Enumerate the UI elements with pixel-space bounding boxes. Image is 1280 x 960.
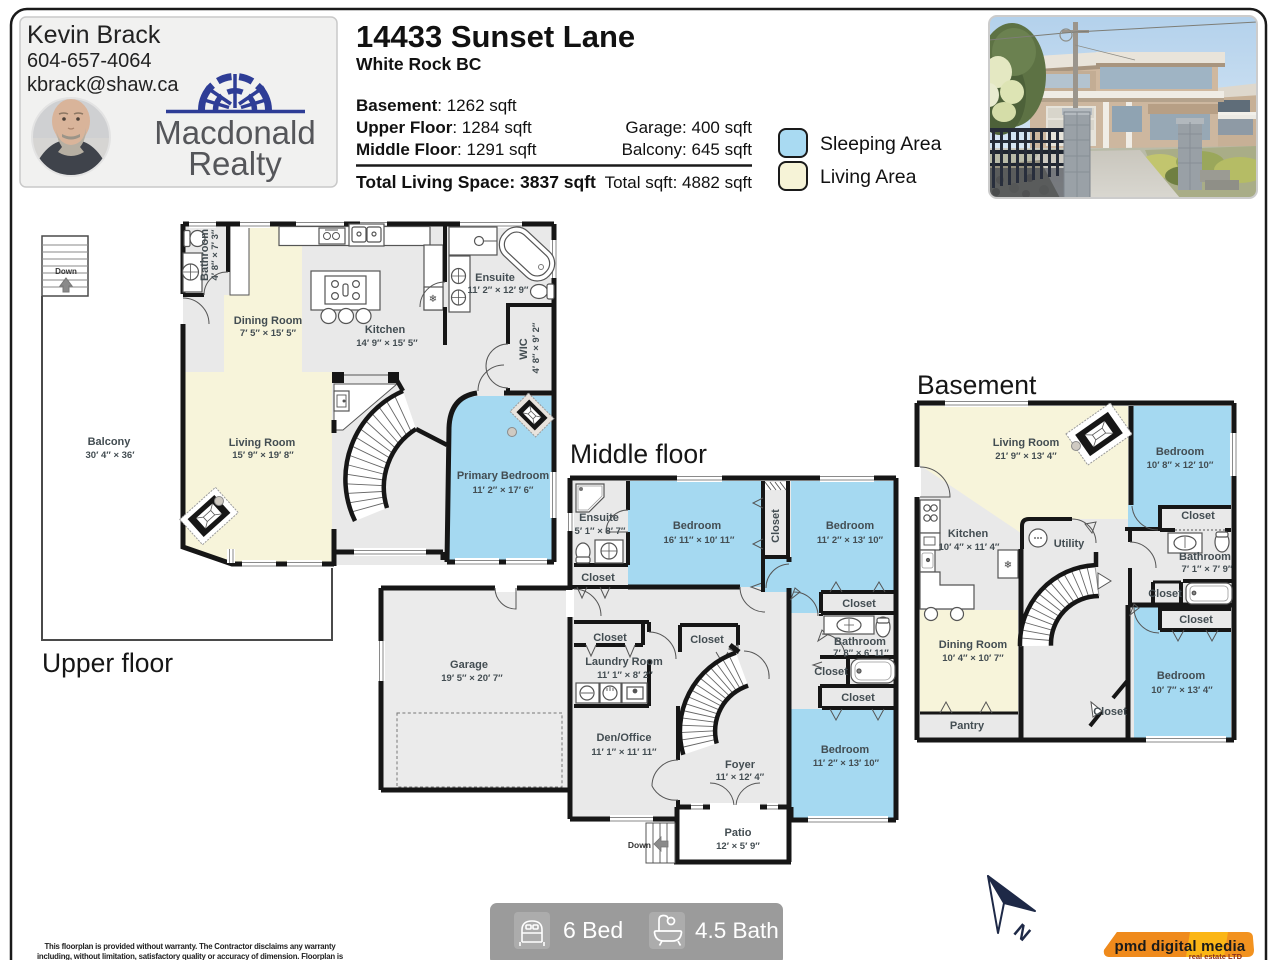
svg-text:5′ 1″ × 8′ 7″: 5′ 1″ × 8′ 7″ [575, 526, 626, 537]
svg-text:11′ 2″ × 17′ 6″: 11′ 2″ × 17′ 6″ [473, 485, 534, 496]
svg-text:Living Room: Living Room [993, 437, 1060, 449]
svg-text:Closet: Closet [1093, 706, 1127, 718]
svg-text:Foyer: Foyer [725, 759, 756, 771]
svg-text:Down: Down [628, 840, 651, 850]
svg-text:Realty: Realty [188, 145, 282, 182]
svg-text:WIC: WIC [518, 338, 530, 359]
svg-text:Den/Office: Den/Office [596, 732, 651, 744]
svg-text:Bedroom: Bedroom [821, 744, 870, 756]
svg-text:Closet: Closet [814, 666, 848, 678]
svg-text:Primary Bedroom: Primary Bedroom [457, 470, 550, 482]
svg-text:Upper floor: Upper floor [42, 648, 173, 678]
svg-text:Basement: Basement [917, 370, 1037, 400]
svg-text:7′ 5″ × 15′ 5″: 7′ 5″ × 15′ 5″ [240, 328, 297, 339]
svg-text:Living Room: Living Room [229, 437, 296, 449]
svg-text:Bathroom: Bathroom [834, 636, 886, 648]
svg-text:11′ 2″ × 12′ 9″: 11′ 2″ × 12′ 9″ [468, 285, 529, 296]
svg-text:10′ 4″ × 11′ 4″: 10′ 4″ × 11′ 4″ [939, 542, 1000, 553]
svg-text:Patio: Patio [725, 827, 752, 839]
svg-text:Living Area: Living Area [820, 166, 917, 188]
svg-text:Garage: 400 sqft: Garage: 400 sqft [625, 118, 752, 137]
svg-text:Closet: Closet [841, 692, 875, 704]
svg-text:Closet: Closet [1179, 614, 1213, 626]
svg-text:14′ 9″ × 15′ 5″: 14′ 9″ × 15′ 5″ [356, 338, 418, 349]
svg-text:kbrack@shaw.ca: kbrack@shaw.ca [27, 74, 179, 96]
svg-text:604-657-4064: 604-657-4064 [27, 50, 152, 72]
svg-text:Total Living Space: 3837 sqft: Total Living Space: 3837 sqft [356, 172, 596, 192]
svg-text:4′ 8″ × 9′ 2″: 4′ 8″ × 9′ 2″ [531, 322, 542, 373]
svg-text:Bedroom: Bedroom [1156, 446, 1205, 458]
svg-text:Closet: Closet [1148, 588, 1182, 600]
svg-text:Kitchen: Kitchen [365, 324, 406, 336]
svg-text:10′ 4″ × 10′ 7″: 10′ 4″ × 10′ 7″ [942, 653, 1004, 664]
svg-text:Closet: Closet [1181, 510, 1215, 522]
svg-text:19′ 5″ × 20′ 7″: 19′ 5″ × 20′ 7″ [441, 673, 503, 684]
svg-text:Upper Floor: 1284 sqft: Upper Floor: 1284 sqft [356, 118, 532, 137]
svg-text:Balcony: 645 sqft: Balcony: 645 sqft [622, 140, 753, 159]
svg-text:Closet: Closet [842, 598, 876, 610]
svg-text:11′ 1″ × 8′ 2″: 11′ 1″ × 8′ 2″ [597, 670, 653, 681]
svg-text:Pantry: Pantry [950, 720, 985, 732]
svg-text:real estate LTD: real estate LTD [1189, 952, 1243, 960]
svg-text:Ensuite: Ensuite [475, 272, 515, 284]
svg-text:15′ 9″ × 19′ 8″: 15′ 9″ × 19′ 8″ [232, 450, 294, 461]
svg-text:This floorplan is provided wit: This floorplan is provided without warra… [44, 942, 336, 951]
svg-text:Kitchen: Kitchen [948, 528, 989, 540]
svg-text:Utility: Utility [1054, 538, 1085, 550]
svg-text:21′ 9″ × 13′ 4″: 21′ 9″ × 13′ 4″ [995, 451, 1057, 462]
svg-text:14433 Sunset Lane: 14433 Sunset Lane [356, 19, 635, 54]
svg-text:Ensuite: Ensuite [579, 512, 619, 524]
svg-text:11′ 2″ × 13′ 10″: 11′ 2″ × 13′ 10″ [813, 758, 880, 769]
svg-text:Bedroom: Bedroom [673, 520, 722, 532]
svg-text:Laundry Room: Laundry Room [585, 656, 663, 668]
svg-text:11′ 2″ × 13′ 10″: 11′ 2″ × 13′ 10″ [817, 535, 884, 546]
svg-text:16′ 11″ × 10′ 11″: 16′ 11″ × 10′ 11″ [664, 535, 735, 546]
svg-text:❄: ❄ [429, 294, 437, 305]
svg-text:4.5 Bath: 4.5 Bath [695, 918, 779, 943]
svg-text:Closet: Closet [593, 632, 627, 644]
svg-text:Bedroom: Bedroom [826, 520, 875, 532]
svg-text:Dining Room: Dining Room [939, 639, 1008, 651]
svg-text:30′ 4″ × 36′: 30′ 4″ × 36′ [86, 450, 136, 461]
svg-text:Bedroom: Bedroom [1157, 670, 1206, 682]
svg-text:6 Bed: 6 Bed [563, 917, 623, 943]
svg-text:4′ 8″ × 7′ 3″: 4′ 8″ × 7′ 3″ [210, 229, 221, 280]
svg-text:Sleeping Area: Sleeping Area [820, 133, 942, 155]
svg-text:Middle Floor: 1291 sqft: Middle Floor: 1291 sqft [356, 140, 537, 159]
svg-text:7′ 1″ × 7′ 9″: 7′ 1″ × 7′ 9″ [1182, 564, 1233, 575]
svg-text:Basement: 1262 sqft: Basement: 1262 sqft [356, 96, 517, 115]
svg-text:White Rock BC: White Rock BC [356, 54, 482, 74]
svg-text:Dining Room: Dining Room [234, 315, 303, 327]
svg-text:11′ 1″ × 11′ 11″: 11′ 1″ × 11′ 11″ [591, 747, 657, 758]
svg-text:Closet: Closet [690, 634, 724, 646]
svg-text:Balcony: Balcony [88, 436, 132, 448]
svg-text:Down: Down [55, 267, 77, 276]
svg-text:❄: ❄ [1004, 560, 1012, 571]
svg-text:10′ 8″ × 12′ 10″: 10′ 8″ × 12′ 10″ [1147, 460, 1214, 471]
svg-text:Garage: Garage [450, 659, 488, 671]
svg-text:11′ × 12′ 4″: 11′ × 12′ 4″ [716, 772, 765, 783]
svg-text:including, without limitation,: including, without limitation, satisfact… [37, 952, 344, 960]
svg-text:10′ 7″ × 13′ 4″: 10′ 7″ × 13′ 4″ [1151, 685, 1213, 696]
svg-text:Middle floor: Middle floor [570, 439, 707, 469]
svg-text:Kevin Brack: Kevin Brack [27, 21, 161, 49]
svg-text:12′ × 5′ 9″: 12′ × 5′ 9″ [716, 841, 760, 852]
svg-text:Bathroom: Bathroom [1179, 551, 1231, 563]
svg-text:7′ 8″ × 6′ 11″: 7′ 8″ × 6′ 11″ [833, 648, 889, 659]
svg-text:Closet: Closet [581, 572, 615, 584]
svg-text:Total sqft: 4882 sqft: Total sqft: 4882 sqft [605, 173, 753, 192]
svg-text:Closet: Closet [770, 509, 782, 543]
